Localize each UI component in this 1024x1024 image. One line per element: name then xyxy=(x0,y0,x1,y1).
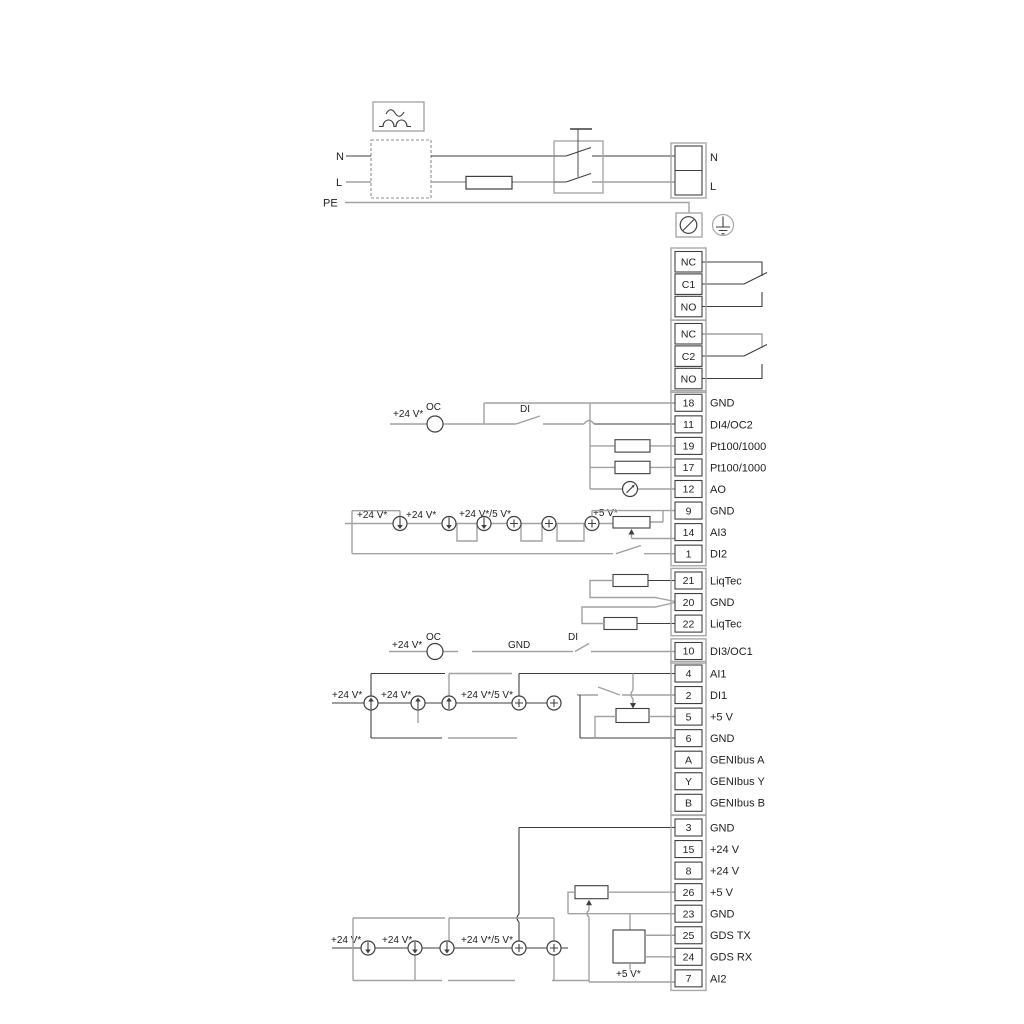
di-switch-icon xyxy=(472,644,675,652)
terminal-number: 12 xyxy=(683,484,695,496)
terminal-label: GENIbus A xyxy=(710,755,765,767)
current-source-down-icon xyxy=(442,517,456,531)
terminal-label: Pt100/1000 xyxy=(710,462,766,474)
current-source-down-icon xyxy=(393,517,407,531)
pt100-resistor-icon xyxy=(615,461,650,473)
terminal-number: 1 xyxy=(686,548,692,560)
gnd-link-wire xyxy=(517,828,519,942)
gds-sensor-module xyxy=(613,914,675,970)
di-label: DI xyxy=(568,632,578,643)
ai3-sensor-row: +24 V* +24 V* +24 V*/5 V* +5 V* xyxy=(345,508,675,554)
voltage-source-plus-icon xyxy=(585,517,599,531)
voltage-source-plus-icon xyxy=(512,696,526,710)
gnd-label: GND xyxy=(508,640,530,651)
l-left-label: L xyxy=(336,177,342,189)
terminal-label: AI2 xyxy=(710,973,727,985)
v24-label: +24 V* xyxy=(381,690,411,701)
di-label: DI xyxy=(520,404,530,415)
v24-5v-label: +24 V*/5 V* xyxy=(461,935,513,946)
di2-switch-icon xyxy=(352,546,675,554)
terminal-number: 2 xyxy=(686,690,692,702)
v24-label: +24 V* xyxy=(393,409,423,420)
terminal-label: DI3/OC1 xyxy=(710,646,753,658)
terminal-label: GND xyxy=(710,505,735,517)
liqtec-wiring xyxy=(582,575,675,630)
relay-terminal-blocks: NCC1NONCC2NO xyxy=(671,248,706,392)
pe-screw-terminal-icon xyxy=(676,213,702,237)
current-source-down-icon xyxy=(477,517,491,531)
terminal-label: +24 V xyxy=(710,866,740,878)
terminal-label: GND xyxy=(710,909,735,921)
terminal-number: 25 xyxy=(683,930,695,942)
terminal-label: AI1 xyxy=(710,668,727,680)
terminal-number: 18 xyxy=(683,398,695,410)
v24-label: +24 V* xyxy=(406,510,436,521)
relay-terminal-id: NO xyxy=(681,374,697,386)
current-source-down-icon xyxy=(440,941,454,955)
terminal-label: GENIbus B xyxy=(710,798,765,810)
liqtec-sensor-icon xyxy=(613,575,648,587)
terminal-number: 22 xyxy=(683,618,695,630)
v24-5v-label: +24 V*/5 V* xyxy=(461,690,513,701)
terminal-label: DI1 xyxy=(710,690,727,702)
terminal-label: +5 V xyxy=(710,887,734,899)
current-source-up-icon xyxy=(442,696,456,710)
terminal-number: B xyxy=(685,798,692,810)
relay-terminal-id: NC xyxy=(681,329,697,341)
l-right-label: L xyxy=(710,181,716,193)
terminal-label: AO xyxy=(710,484,726,496)
voltage-source-plus-icon xyxy=(542,517,556,531)
terminal-label: GDS RX xyxy=(710,952,753,964)
terminal-number: 23 xyxy=(683,908,695,920)
liqtec-sensor-icon xyxy=(604,618,637,630)
fuse-icon xyxy=(466,176,512,189)
terminal-label: GND xyxy=(710,398,735,410)
voltage-source-plus-icon xyxy=(547,696,561,710)
terminal-number: 3 xyxy=(686,822,692,834)
oc-label: OC xyxy=(426,632,441,643)
wiper-arrow-icon xyxy=(629,529,635,535)
relay-terminal-id: NC xyxy=(681,257,697,269)
terminal-label: +5 V xyxy=(710,712,734,724)
relay-terminal-id: NO xyxy=(681,302,697,314)
diagram-canvas: N L PE N L xyxy=(0,0,1024,1024)
terminal-number: 11 xyxy=(683,419,694,431)
terminal-label: GND xyxy=(710,822,735,834)
voltage-source-plus-icon xyxy=(512,941,526,955)
terminal-number: 6 xyxy=(686,733,692,745)
terminal-number: 5 xyxy=(686,711,692,723)
gds-module-icon xyxy=(613,930,645,963)
n-right-label: N xyxy=(710,152,718,164)
terminal-number: 26 xyxy=(683,887,695,899)
terminal-number: 8 xyxy=(686,865,692,877)
terminal-label: DI4/OC2 xyxy=(710,419,753,431)
wiper-arrow-icon xyxy=(630,703,636,709)
earth-ground-icon xyxy=(713,215,734,236)
wiper-arrow-icon xyxy=(586,900,592,906)
terminal-label: LiqTec xyxy=(710,619,742,631)
potentiometer-icon xyxy=(575,886,608,899)
ai2-sensor-row: +24 V* +24 V* +24 V*/5 V* +5 V* xyxy=(331,828,675,983)
terminal-label: GND xyxy=(710,733,735,745)
analog-output-meter-icon xyxy=(623,482,638,497)
potentiometer-icon xyxy=(613,517,650,529)
pe-wire xyxy=(345,203,689,214)
terminal-label: +24 V xyxy=(710,844,740,856)
voltage-source-plus-icon xyxy=(507,517,521,531)
terminal-number: 14 xyxy=(683,527,695,539)
current-source-down-icon xyxy=(361,941,375,955)
nl-terminal-block: N L xyxy=(671,143,718,198)
voltage-source-plus-icon xyxy=(547,941,561,955)
terminal-number: 19 xyxy=(683,441,695,453)
wiring-diagram: N L PE N L xyxy=(0,0,1024,1024)
ai1-sensor-row: +24 V* +24 V* +24 V*/5 V* xyxy=(332,674,675,739)
terminal-label: GENIbus Y xyxy=(710,776,765,788)
terminal-number: A xyxy=(685,754,692,766)
power-section: N L PE N L xyxy=(323,102,734,237)
terminal-label: DI2 xyxy=(710,549,727,561)
open-collector-icon xyxy=(427,416,443,432)
potentiometer-icon xyxy=(616,709,649,723)
relay-1-wiring xyxy=(702,262,767,307)
current-source-up-icon xyxy=(411,696,425,710)
v24-label: +24 V* xyxy=(332,690,362,701)
filter-box xyxy=(371,140,431,198)
terminal-label: Pt100/1000 xyxy=(710,441,766,453)
relay-terminal-id: C2 xyxy=(682,351,696,363)
terminal-number: 20 xyxy=(683,597,695,609)
terminal-label: LiqTec xyxy=(710,575,742,587)
terminal-number: 15 xyxy=(683,844,695,856)
main-switch-icon xyxy=(554,129,603,193)
v24-label: +24 V* xyxy=(357,510,387,521)
v5-label: +5 V* xyxy=(616,969,641,980)
v24-label: +24 V* xyxy=(331,935,361,946)
di-switch-icon xyxy=(484,416,540,424)
terminal-number: 4 xyxy=(686,668,692,680)
terminal-number: 10 xyxy=(683,646,695,658)
di1-switch-icon xyxy=(577,687,620,695)
open-collector-icon xyxy=(427,644,443,660)
terminal-number: Y xyxy=(685,776,692,788)
terminal-label: AI3 xyxy=(710,527,727,539)
oc-label: OC xyxy=(426,402,441,413)
terminal-number: 24 xyxy=(683,952,695,964)
pe-label: PE xyxy=(323,198,338,210)
di4-oc2-row: +24 V* OC DI xyxy=(390,402,675,497)
terminal-number: 9 xyxy=(686,505,692,517)
terminal-number: 17 xyxy=(683,462,695,474)
mains-signal-icon xyxy=(373,102,424,131)
terminal-number: 7 xyxy=(686,973,692,985)
relay-2-wiring xyxy=(702,334,767,379)
current-source-down-icon xyxy=(408,941,422,955)
v24-label: +24 V* xyxy=(392,640,422,651)
terminal-label: GND xyxy=(710,597,735,609)
terminal-number: 21 xyxy=(683,575,695,587)
terminal-label: GDS TX xyxy=(710,930,751,942)
n-left-label: N xyxy=(336,151,344,163)
pt100-resistor-icon xyxy=(615,440,650,452)
v24-label: +24 V* xyxy=(382,935,412,946)
relay-terminal-id: C1 xyxy=(682,279,696,291)
current-source-up-icon xyxy=(364,696,378,710)
di3-oc1-row: +24 V* OC GND DI xyxy=(389,632,675,660)
terminal-blocks: 18GND11DI4/OC219Pt100/100017Pt100/100012… xyxy=(671,391,766,991)
